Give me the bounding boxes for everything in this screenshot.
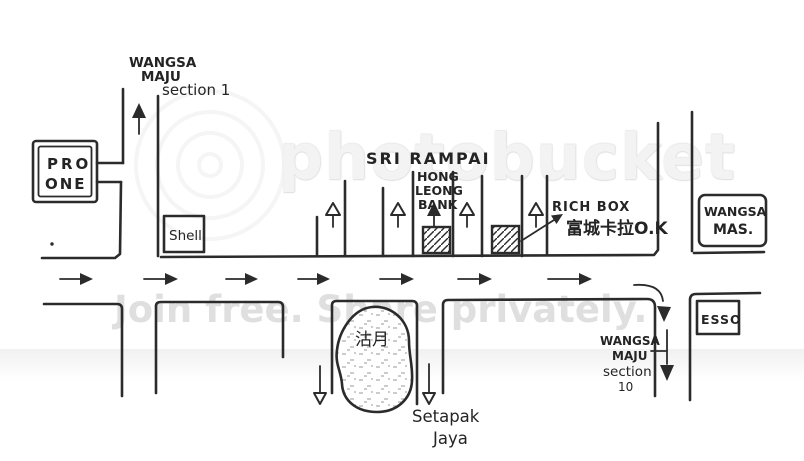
right-arrow bbox=[298, 273, 330, 285]
hong-leong-line3: BANK bbox=[418, 197, 459, 212]
rich-box-chinese-label: 富城卡拉O.K bbox=[566, 218, 669, 239]
section1-up-arrow bbox=[132, 103, 146, 134]
lake: 沽月 bbox=[337, 307, 413, 412]
wangsa-mas-box: WANGSA MAS. bbox=[699, 195, 767, 246]
road-bottom-edge-2 bbox=[156, 302, 283, 393]
wangsa-maju-1-line3: section 1 bbox=[162, 81, 230, 99]
right-arrow bbox=[548, 273, 592, 285]
up-arrow-hollow bbox=[326, 203, 340, 227]
side-street-down-arrow bbox=[314, 366, 326, 404]
road-bottom-edge-5 bbox=[690, 293, 760, 400]
right-arrow bbox=[226, 273, 258, 285]
right-arrow bbox=[60, 273, 93, 285]
main-road-flow-arrows bbox=[60, 273, 592, 285]
road-top-edge-west bbox=[42, 182, 121, 258]
rich-box-label: RICH BOX bbox=[552, 200, 630, 215]
wangsa-mas-label-1: WANGSA bbox=[704, 204, 767, 219]
setapak-down-arrow bbox=[423, 364, 435, 404]
rich-box-building bbox=[492, 214, 563, 253]
road-top-edge-east bbox=[694, 252, 764, 253]
up-arrow-hollow bbox=[529, 203, 543, 227]
wangsa-maju-10-line3: section bbox=[603, 364, 652, 380]
wangsa-maju-10-line4: 10 bbox=[618, 380, 633, 394]
pro-one-label-1: PRO bbox=[47, 155, 91, 173]
esso-label: ESSO bbox=[701, 312, 742, 327]
stray-dot bbox=[50, 242, 53, 245]
hong-leong-line1: HONG bbox=[417, 169, 459, 184]
rich-box-pointer-head bbox=[551, 214, 563, 224]
up-arrow-hollow bbox=[391, 203, 405, 227]
road-bottom-edge-1 bbox=[44, 304, 122, 396]
hand-drawn-map-image: photobucket Join free. Share privately. bbox=[0, 0, 804, 461]
shell-label: Shell bbox=[169, 228, 202, 244]
esso-station-box: ESSO bbox=[697, 301, 742, 334]
lake-outline bbox=[337, 307, 413, 412]
right-arrow bbox=[458, 273, 492, 285]
map-drawing: 沽月 PRO ONE Shell WANGSA MAS. ESSO WANGSA… bbox=[0, 0, 804, 461]
hong-leong-line2: LEONG bbox=[415, 183, 463, 198]
right-arrow bbox=[380, 273, 414, 285]
wangsa-maju-10-line1: WANGSA bbox=[600, 334, 661, 348]
shell-station-box: Shell bbox=[164, 216, 204, 252]
turn-curve-head bbox=[657, 306, 671, 322]
setapak-jaya-line1: Setapak bbox=[412, 407, 480, 426]
rich-box-pointer-line bbox=[521, 220, 554, 241]
right-arrow bbox=[144, 273, 178, 285]
sri-rampai-label: SRI RAMPAI bbox=[366, 149, 491, 168]
pro-one-box: PRO ONE bbox=[33, 141, 97, 202]
wangsa-maju-10-line2: MAJU bbox=[612, 349, 647, 363]
wangsa-mas-label-2: MAS. bbox=[713, 222, 753, 238]
lake-label: 沽月 bbox=[355, 330, 389, 350]
up-arrow-hollow bbox=[460, 203, 474, 227]
pro-one-label-2: ONE bbox=[45, 175, 87, 193]
down-line-head bbox=[660, 365, 674, 381]
setapak-jaya-line2: Jaya bbox=[432, 429, 468, 448]
